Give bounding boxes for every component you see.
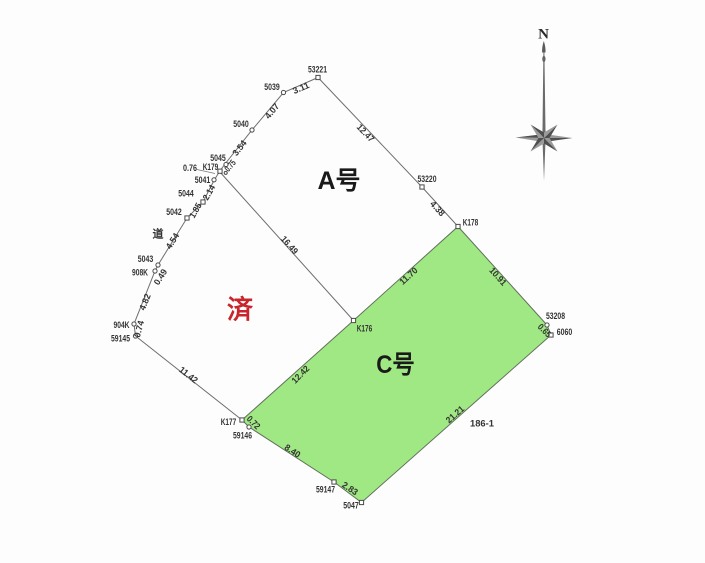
svg-text:59145: 59145 (111, 334, 130, 344)
svg-text:道: 道 (153, 227, 164, 241)
svg-text:53221: 53221 (308, 65, 327, 75)
svg-text:K179: K179 (203, 162, 219, 172)
svg-text:N: N (538, 27, 549, 43)
svg-text:0.76: 0.76 (183, 163, 197, 173)
svg-text:K178: K178 (463, 218, 479, 228)
svg-text:5039: 5039 (264, 82, 280, 92)
svg-text:908K: 908K (132, 268, 148, 278)
svg-text:186-1: 186-1 (470, 419, 494, 429)
svg-text:C号: C号 (376, 351, 415, 379)
svg-text:5044: 5044 (178, 189, 194, 199)
svg-text:5042: 5042 (166, 207, 182, 217)
svg-text:59146: 59146 (233, 431, 252, 441)
svg-text:6060: 6060 (557, 327, 573, 337)
svg-text:K177: K177 (221, 417, 237, 427)
svg-text:904K: 904K (114, 320, 130, 330)
svg-text:5043: 5043 (138, 254, 154, 264)
svg-text:済: 済 (227, 295, 254, 325)
svg-text:5040: 5040 (233, 119, 249, 129)
svg-text:K176: K176 (357, 324, 373, 334)
svg-text:59147: 59147 (316, 485, 335, 495)
svg-text:53220: 53220 (418, 174, 437, 184)
svg-text:53208: 53208 (546, 311, 565, 321)
svg-text:A号: A号 (318, 167, 361, 195)
svg-text:5047: 5047 (343, 501, 359, 511)
